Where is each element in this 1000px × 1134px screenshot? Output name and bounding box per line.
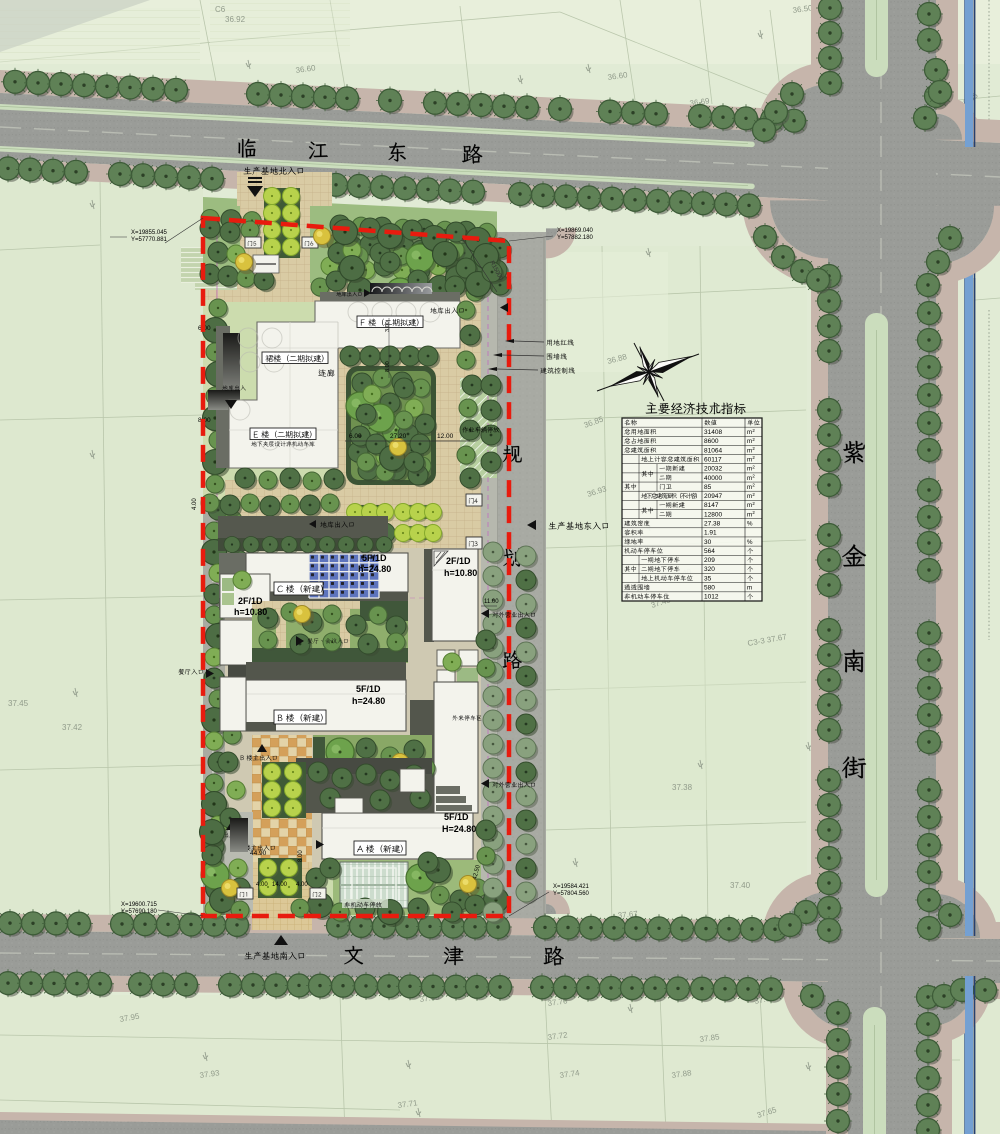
svg-text:60117: 60117 <box>704 456 722 463</box>
svg-text:m: m <box>747 447 752 454</box>
svg-text:X=19869.040: X=19869.040 <box>557 228 594 234</box>
svg-text:C6: C6 <box>215 5 226 14</box>
svg-text:37.38: 37.38 <box>672 783 693 792</box>
svg-text:Y=57690.180: Y=57690.180 <box>121 909 158 915</box>
svg-text:320: 320 <box>704 566 715 573</box>
svg-text:8.00: 8.00 <box>298 850 304 862</box>
svg-text:X=19600.715: X=19600.715 <box>121 902 158 908</box>
svg-text:12.00: 12.00 <box>437 433 454 440</box>
svg-text:37.45: 37.45 <box>8 699 29 708</box>
svg-text:1012: 1012 <box>704 594 719 601</box>
svg-text:%: % <box>747 521 753 528</box>
svg-text:209: 209 <box>704 557 715 564</box>
svg-text:12800: 12800 <box>704 511 722 518</box>
svg-text:31408: 31408 <box>704 429 722 436</box>
svg-text:2F/1D: 2F/1D <box>446 556 471 566</box>
svg-text:2F/1D: 2F/1D <box>238 596 263 606</box>
svg-text:h=24.80: h=24.80 <box>352 696 385 706</box>
svg-text:4.00: 4.00 <box>296 882 308 888</box>
svg-text:8.00: 8.00 <box>385 361 391 372</box>
svg-text:30: 30 <box>704 539 712 546</box>
svg-text:m: m <box>747 466 752 473</box>
svg-text:8147: 8147 <box>704 502 719 509</box>
svg-text:H=24.80: H=24.80 <box>442 824 476 834</box>
svg-text:14.00: 14.00 <box>272 882 288 888</box>
svg-text:m: m <box>747 502 752 509</box>
svg-text:4.00: 4.00 <box>256 882 268 888</box>
svg-text:h=10.80: h=10.80 <box>234 607 267 617</box>
svg-text:h=24.80: h=24.80 <box>358 564 391 574</box>
svg-text:m: m <box>747 456 752 463</box>
svg-text:37.40: 37.40 <box>730 881 751 890</box>
svg-text:85: 85 <box>704 484 712 491</box>
svg-text:27.38: 27.38 <box>704 521 721 528</box>
svg-text:X=19584.421: X=19584.421 <box>553 884 590 890</box>
svg-text:m: m <box>747 484 752 491</box>
svg-text:35: 35 <box>704 575 712 582</box>
svg-text:m: m <box>747 511 752 518</box>
svg-text:5F/1D: 5F/1D <box>356 684 381 694</box>
svg-text:6.00: 6.00 <box>349 433 362 440</box>
svg-text:20032: 20032 <box>704 466 722 473</box>
svg-text:11.00: 11.00 <box>484 599 499 605</box>
svg-text:36.92: 36.92 <box>225 15 246 24</box>
svg-text:27.20: 27.20 <box>390 433 407 440</box>
svg-text:40000: 40000 <box>704 475 722 482</box>
svg-text:m: m <box>747 475 752 482</box>
svg-text:580: 580 <box>704 585 715 592</box>
svg-text:5F/1D: 5F/1D <box>362 553 387 563</box>
svg-text:%: % <box>747 539 753 546</box>
svg-text:20947: 20947 <box>704 493 722 500</box>
svg-text:m: m <box>747 438 752 445</box>
svg-text:5F/1D: 5F/1D <box>444 812 469 822</box>
svg-text:81064: 81064 <box>704 447 722 454</box>
svg-text:m: m <box>747 493 752 500</box>
svg-text:Y=57804.560: Y=57804.560 <box>553 891 590 897</box>
svg-text:m: m <box>747 585 752 592</box>
svg-text:564: 564 <box>704 548 715 555</box>
svg-text:h=10.80: h=10.80 <box>444 568 477 578</box>
svg-text:Y=57882.180: Y=57882.180 <box>557 235 594 241</box>
svg-text:X=19855.045: X=19855.045 <box>131 230 168 236</box>
svg-text:1.91: 1.91 <box>704 530 717 537</box>
svg-text:Y=57770.881: Y=57770.881 <box>131 237 168 243</box>
svg-text:44.90: 44.90 <box>250 850 267 857</box>
svg-text:37.42: 37.42 <box>62 723 83 732</box>
svg-text:m: m <box>747 429 752 436</box>
svg-text:3.00: 3.00 <box>385 321 391 332</box>
svg-text:8600: 8600 <box>704 438 719 445</box>
svg-text:4.00: 4.00 <box>192 498 198 510</box>
